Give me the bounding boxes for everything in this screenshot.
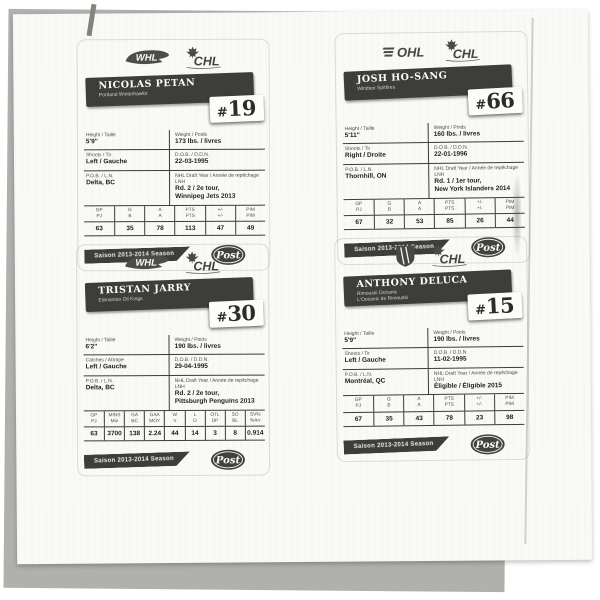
stats-header: LD [184, 411, 204, 427]
info-cell: Weight / Poids190 lbs. / livres [169, 335, 265, 355]
info-cell: Height / Taille6'2" [83, 335, 168, 355]
stats-value: 0.914 [245, 426, 265, 440]
stats-value: 78 [434, 410, 464, 424]
info-cell: Height / Taille5'9" [84, 130, 169, 150]
stats-header: GAAMOY [144, 411, 164, 427]
info-cell: Weight / Poids173 lbs. / livres [169, 130, 265, 150]
stats-header: PTSPTS [175, 206, 205, 222]
stats-value: 35 [114, 221, 144, 235]
stats-value: 14 [184, 426, 204, 440]
chl-logo-text: CHL [452, 47, 478, 61]
post-logo-text: Post [474, 439, 500, 450]
name-banner-area: NICOLAS PETAN Portland Winterhawks #19 [84, 72, 265, 127]
info-label: NHL Draft Year / Année de repêchage LNH [175, 378, 262, 390]
info-cell: P.O.B. / L.N.Montréal, QC [343, 368, 428, 395]
info-value: 22-01-1996 [434, 150, 521, 160]
card-footer: Saison 2013-2014 Season Post [84, 449, 265, 472]
player-info-table: Height / Taille5'11"Weight / Poids160 lb… [343, 122, 525, 200]
info-value: 160 lbs. / livres [434, 130, 521, 140]
stats-header: PTSPTS [434, 395, 464, 411]
info-cell: NHL Draft Year / Année de repêchage LNHR… [169, 170, 265, 205]
player-info-table: Height / Taille6'2"Weight / Poids190 lbs… [83, 335, 264, 412]
trading-card-back: LHJMQ LHJMQ CHL ANTHONY DELUCA R [341, 243, 525, 457]
stats-value: 3700 [104, 426, 124, 440]
stats-value: 53 [404, 214, 434, 228]
info-value: Thornhill, ON [345, 172, 425, 181]
info-cell: NHL Draft Year / Année de repêchage LNHR… [169, 374, 265, 409]
stats-header: AA [144, 206, 174, 222]
logo-row: OHL OHL CHL [341, 38, 522, 64]
info-cell: NHL Draft Year / Année de repêchage LNHÉ… [428, 367, 524, 395]
stats-value: 113 [175, 221, 205, 235]
info-cell: P.O.B. / L.N.Delta, BC [84, 375, 169, 410]
ohl-logo: OHL [381, 41, 429, 62]
stats-value: 32 [374, 215, 404, 229]
trading-card-back: OHL OHL CHL JOSH HO-SANG Windsor [341, 38, 525, 261]
qmjhl-logo [394, 244, 416, 268]
info-cell: Catches / AttrapeLeft / Gauche [84, 354, 169, 375]
stats-value: 49 [235, 221, 265, 235]
info-value: Rd. 2 / 2e tour, Winnipeg Jets 2013 [175, 185, 262, 202]
info-value: 5'9" [344, 336, 424, 345]
jersey-number: 19 [227, 95, 256, 121]
stats-header: OTLDP [204, 411, 224, 427]
stats-header: +/-+/- [464, 198, 494, 214]
chl-logo: CHL [180, 46, 224, 70]
stats-header: MINSMin [104, 411, 124, 427]
chl-logo: CHL [180, 251, 224, 275]
info-value: 22-03-1995 [175, 158, 262, 167]
info-value: Delta, BC [86, 179, 166, 188]
stats-header: WV [164, 411, 184, 427]
info-value: 5'11" [345, 131, 425, 140]
info-cell: NHL Draft Year / Année de repêchage LNHR… [428, 162, 524, 198]
info-value: 5'9" [86, 138, 166, 147]
info-cell: Shoots / TirRight / Droite [343, 142, 428, 164]
chl-logo-text: CHL [193, 54, 219, 68]
stats-value: 44 [164, 426, 184, 440]
season-stats-table: GPPJGBAAPTSPTS+/-+/-PIMPIM673543782398 [343, 394, 524, 427]
name-banner-area: ANTHONY DELUCA Rimouski Océanic L'Océani… [342, 269, 524, 325]
name-banner-area: JOSH HO-SANG Windsor Spitfires #66 [342, 64, 524, 120]
info-value: Right / Droite [345, 152, 425, 161]
stats-header: PIMPIM [235, 205, 265, 221]
stats-header: +/-+/- [205, 206, 235, 222]
info-value: 29-04-1995 [175, 363, 262, 372]
info-cell: Shoots / TirLeft / Gauche [342, 347, 427, 368]
info-value: 190 lbs. / livres [433, 335, 520, 344]
logo-row: WHL WHL CHL [83, 251, 264, 276]
chl-logo-text: CHL [193, 259, 219, 273]
info-value: 190 lbs. / livres [175, 343, 262, 352]
ohl-logo-text: OHL [396, 45, 424, 60]
trading-card-back: WHL WHL CHL NICOLAS PETAN Portla [84, 46, 266, 267]
info-cell: D.O.B. / D.D.N.11-02-1995 [428, 346, 524, 368]
info-value: Rd. 1 / 1er tour, New York Islanders 201… [434, 177, 521, 195]
stats-header: AA [404, 199, 434, 215]
scanned-sheet: WHL WHL CHL NICOLAS PETAN Portla [13, 10, 592, 564]
season-banner: Saison 2013-2014 Season [84, 452, 190, 469]
trading-card-back: WHL WHL CHL TRISTAN JARRY Edmont [83, 251, 265, 472]
logo-row: WHL WHL CHL [84, 46, 265, 71]
stats-header: GABC [124, 411, 144, 427]
stats-value: 47 [205, 221, 235, 235]
jersey-number: 66 [485, 87, 514, 113]
stats-value: 138 [124, 426, 144, 440]
stats-value: 8 [225, 426, 245, 440]
chl-logo: CHL [439, 38, 483, 63]
season-stats-table: GPPJMINSMinGABCGAAMOYWVLDOTLDPSOBLSV%%Ar… [84, 410, 265, 441]
info-label: NHL Draft Year / Année de repêchage LNH [434, 370, 521, 383]
info-label: NHL Draft Year / Année de repêchage LNH [175, 173, 262, 185]
jersey-number-box: #66 [468, 87, 523, 116]
card-footer: Saison 2013-2014 Season Post [344, 433, 525, 457]
info-cell: D.O.B. / D.D.N.29-04-1995 [169, 354, 265, 375]
stats-value: 26 [464, 213, 494, 227]
stats-value: 43 [404, 411, 434, 425]
chl-logo-text: CHL [439, 252, 465, 266]
stats-header: GB [114, 206, 144, 222]
info-cell: Shoots / TirLeft / Gauche [84, 149, 169, 170]
stats-header: GPPJ [84, 206, 114, 222]
jersey-number-box: #30 [209, 300, 264, 328]
post-logo: Post [210, 449, 246, 471]
info-cell: Height / Taille5'11" [343, 123, 428, 144]
stats-value: 2.24 [144, 426, 164, 440]
info-value: Left / Gauche [86, 158, 166, 167]
info-cell: P.O.B. / L.N.Delta, BC [84, 170, 169, 205]
stats-value: 63 [84, 221, 114, 235]
number-hash: # [475, 303, 487, 319]
info-cell: D.O.B. / D.D.N.22-03-1995 [169, 149, 265, 170]
stats-value: 85 [434, 214, 464, 228]
stats-header: PTSPTS [434, 198, 464, 214]
stats-header: GB [374, 199, 404, 215]
paper-fold-mark [512, 172, 522, 258]
stats-header: AA [403, 395, 433, 411]
stats-value: 3 [205, 426, 225, 440]
info-cell: Weight / Poids190 lbs. / livres [427, 327, 523, 348]
info-cell: P.O.B. / L.N.Thornhill, ON [343, 163, 429, 199]
stats-header: GPPJ [344, 200, 374, 216]
number-hash: # [216, 310, 228, 325]
whl-logo: WHL [124, 253, 170, 273]
info-value: 173 lbs. / livres [175, 138, 262, 147]
name-banner-area: TRISTAN JARRY Edmonton Oil Kings #30 [83, 277, 264, 332]
number-hash: # [217, 105, 229, 120]
info-cell: D.O.B. / D.D.N.22-01-1996 [428, 141, 524, 163]
season-stats-table: GPPJGBAAPTSPTS+/-+/-PIMPIM6335781134749 [84, 205, 265, 236]
post-logo: Post [469, 433, 505, 455]
info-value: 11-02-1995 [434, 355, 521, 364]
stats-value: 63 [84, 427, 104, 441]
post-logo-text: Post [215, 455, 241, 466]
stats-value: 98 [494, 410, 524, 424]
player-info-table: Height / Taille5'9"Weight / Poids190 lbs… [342, 327, 524, 397]
jersey-number-box: #19 [209, 95, 264, 123]
stats-header: SV%%Arr [245, 410, 265, 426]
stats-value: 35 [373, 411, 403, 425]
stats-header: +/-+/- [464, 395, 494, 411]
info-value: Montréal, QC [345, 377, 425, 386]
stats-value: 78 [145, 221, 175, 235]
chl-logo: CHL [426, 244, 470, 269]
whl-logo-text: WHL [135, 53, 157, 64]
player-info-table: Height / Taille5'9"Weight / Poids173 lbs… [84, 130, 265, 206]
whl-logo: WHL [124, 48, 170, 68]
jersey-number: 15 [485, 292, 514, 318]
info-value: Rd. 2 / 2e tour, Pittsburgh Penguins 201… [175, 390, 262, 407]
info-cell: Height / Taille5'9" [342, 328, 427, 348]
stats-header: GPPJ [84, 411, 104, 427]
info-value: Éligible / Éligible 2015 [434, 382, 521, 391]
stats-value: 67 [344, 215, 374, 229]
number-hash: # [475, 98, 487, 114]
info-value: Left / Gauche [86, 363, 166, 372]
jersey-number-box: #15 [467, 292, 522, 321]
whl-logo-text: WHL [135, 258, 157, 269]
stats-header: GPPJ [343, 396, 373, 412]
jersey-number: 30 [227, 300, 256, 326]
stats-header: GB [373, 396, 403, 412]
stats-value: 67 [343, 411, 373, 425]
info-cell: Weight / Poids160 lbs. / livres [428, 122, 524, 143]
season-banner: Saison 2013-2014 Season [343, 436, 449, 454]
info-value: Left / Gauche [345, 357, 425, 366]
logo-row: LHJMQ LHJMQ CHL [341, 243, 522, 269]
info-value: 6'2" [86, 343, 166, 352]
stats-value: 23 [464, 410, 494, 424]
info-value: Delta, BC [86, 384, 166, 393]
stats-header: PIMPIM [494, 394, 524, 410]
season-stats-table: GPPJGBAAPTSPTS+/-+/-PIMPIM673253852644 [344, 198, 525, 231]
stats-header: SOBL [225, 410, 245, 426]
